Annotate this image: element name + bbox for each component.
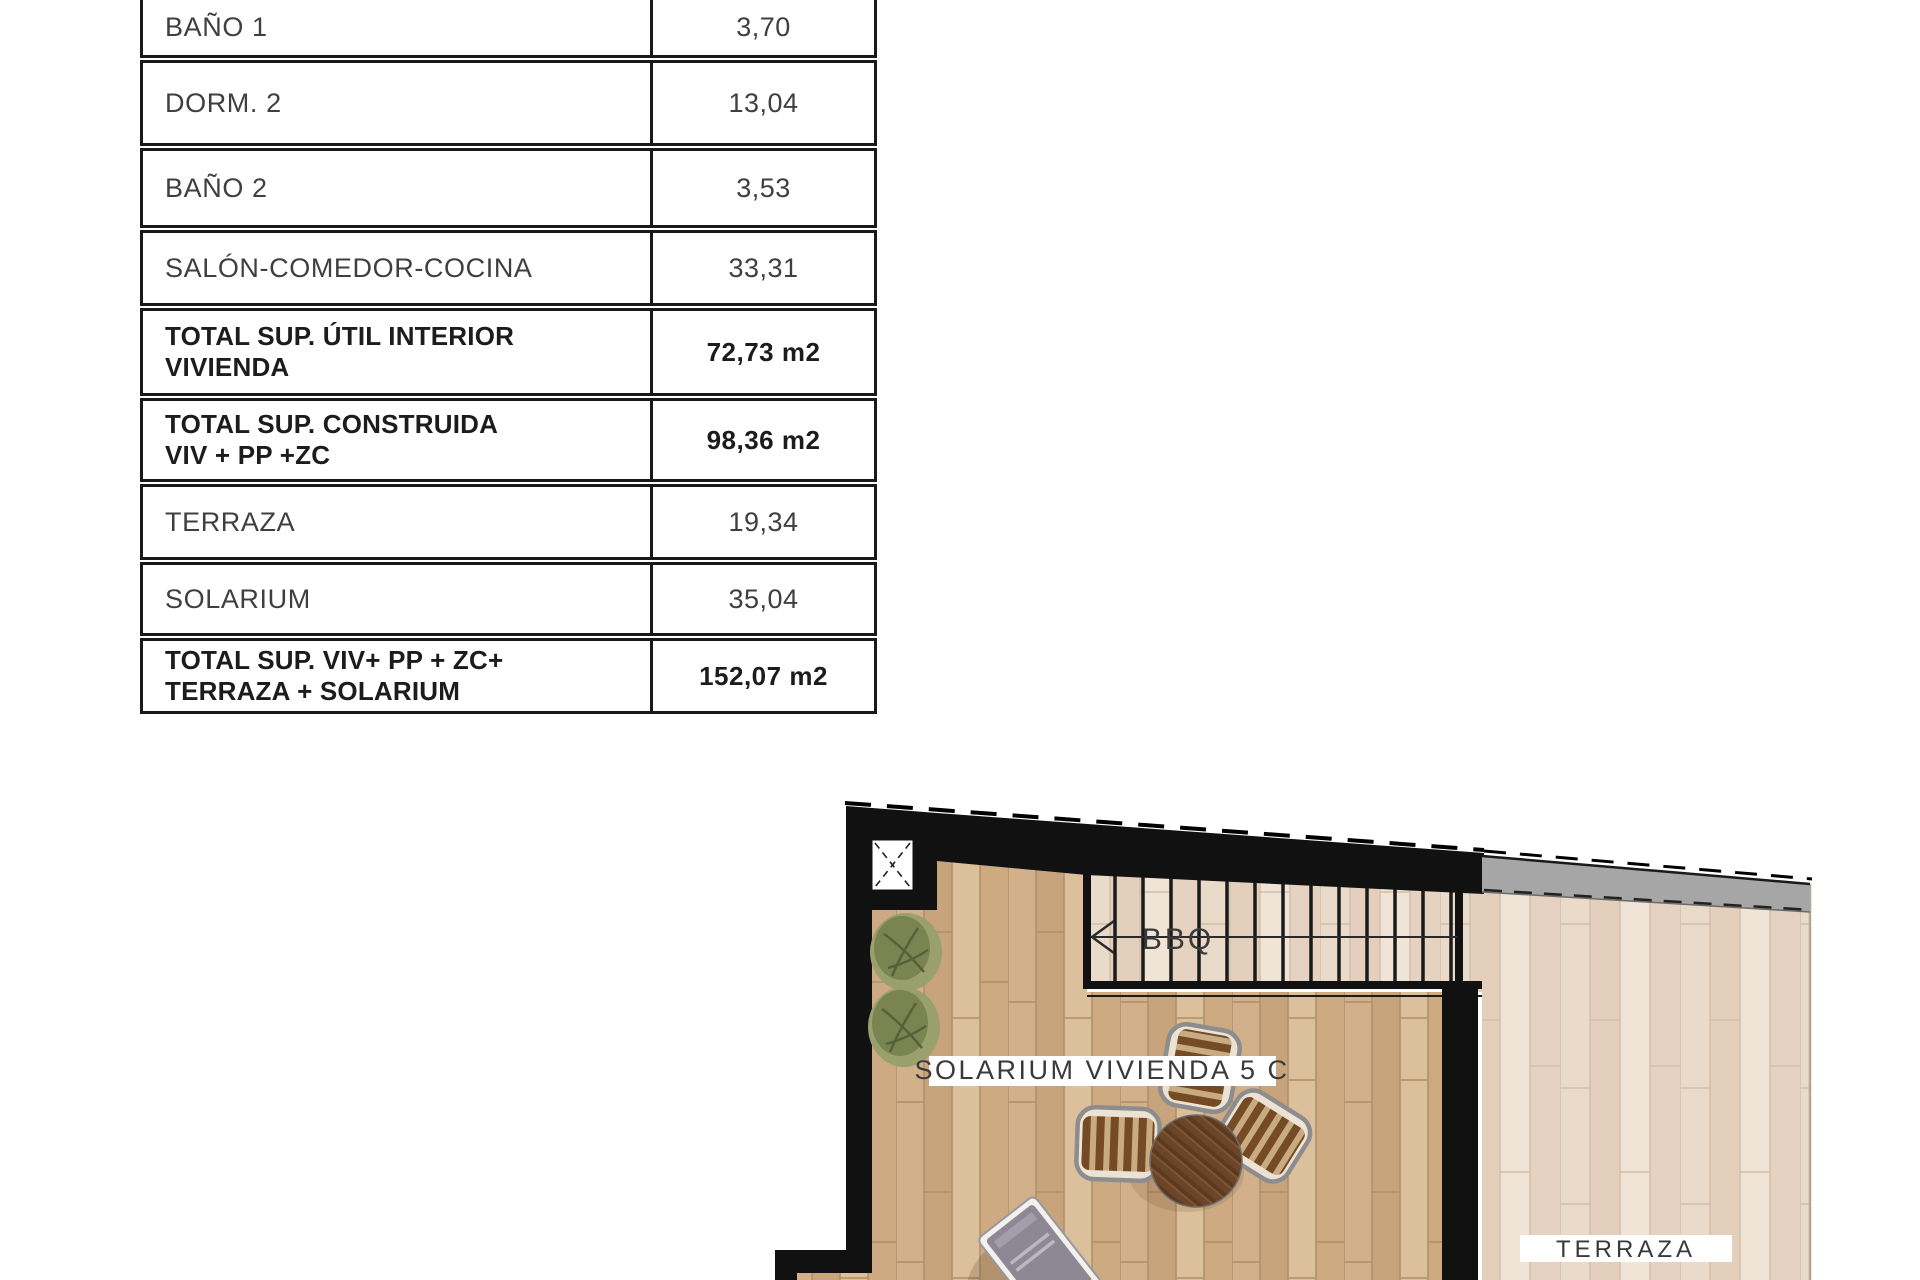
terraza-label: TERRAZA [1556, 1236, 1696, 1263]
bbq-label: BBQ [1142, 923, 1214, 956]
brochure-page: { "area_table": { "rows": [ {"label": "B… [0, 0, 1920, 1280]
wall-step-vertical [775, 1250, 797, 1280]
round-table [1150, 1115, 1242, 1207]
chair [1076, 1107, 1160, 1182]
stair-left-border [1083, 870, 1091, 988]
floor-plan: SOLARIUM VIVIENDA 5 C TERRAZA BBQ [0, 0, 1920, 1280]
plant [870, 913, 942, 991]
stair-bottom-border [1083, 981, 1482, 989]
terraza-floor [1463, 884, 1810, 1280]
elevator-shaft-symbol [871, 839, 914, 891]
wall-left [846, 850, 872, 1253]
solarium-label: SOLARIUM VIVIENDA 5 C [914, 1055, 1289, 1085]
wall-divider [1442, 988, 1478, 1280]
